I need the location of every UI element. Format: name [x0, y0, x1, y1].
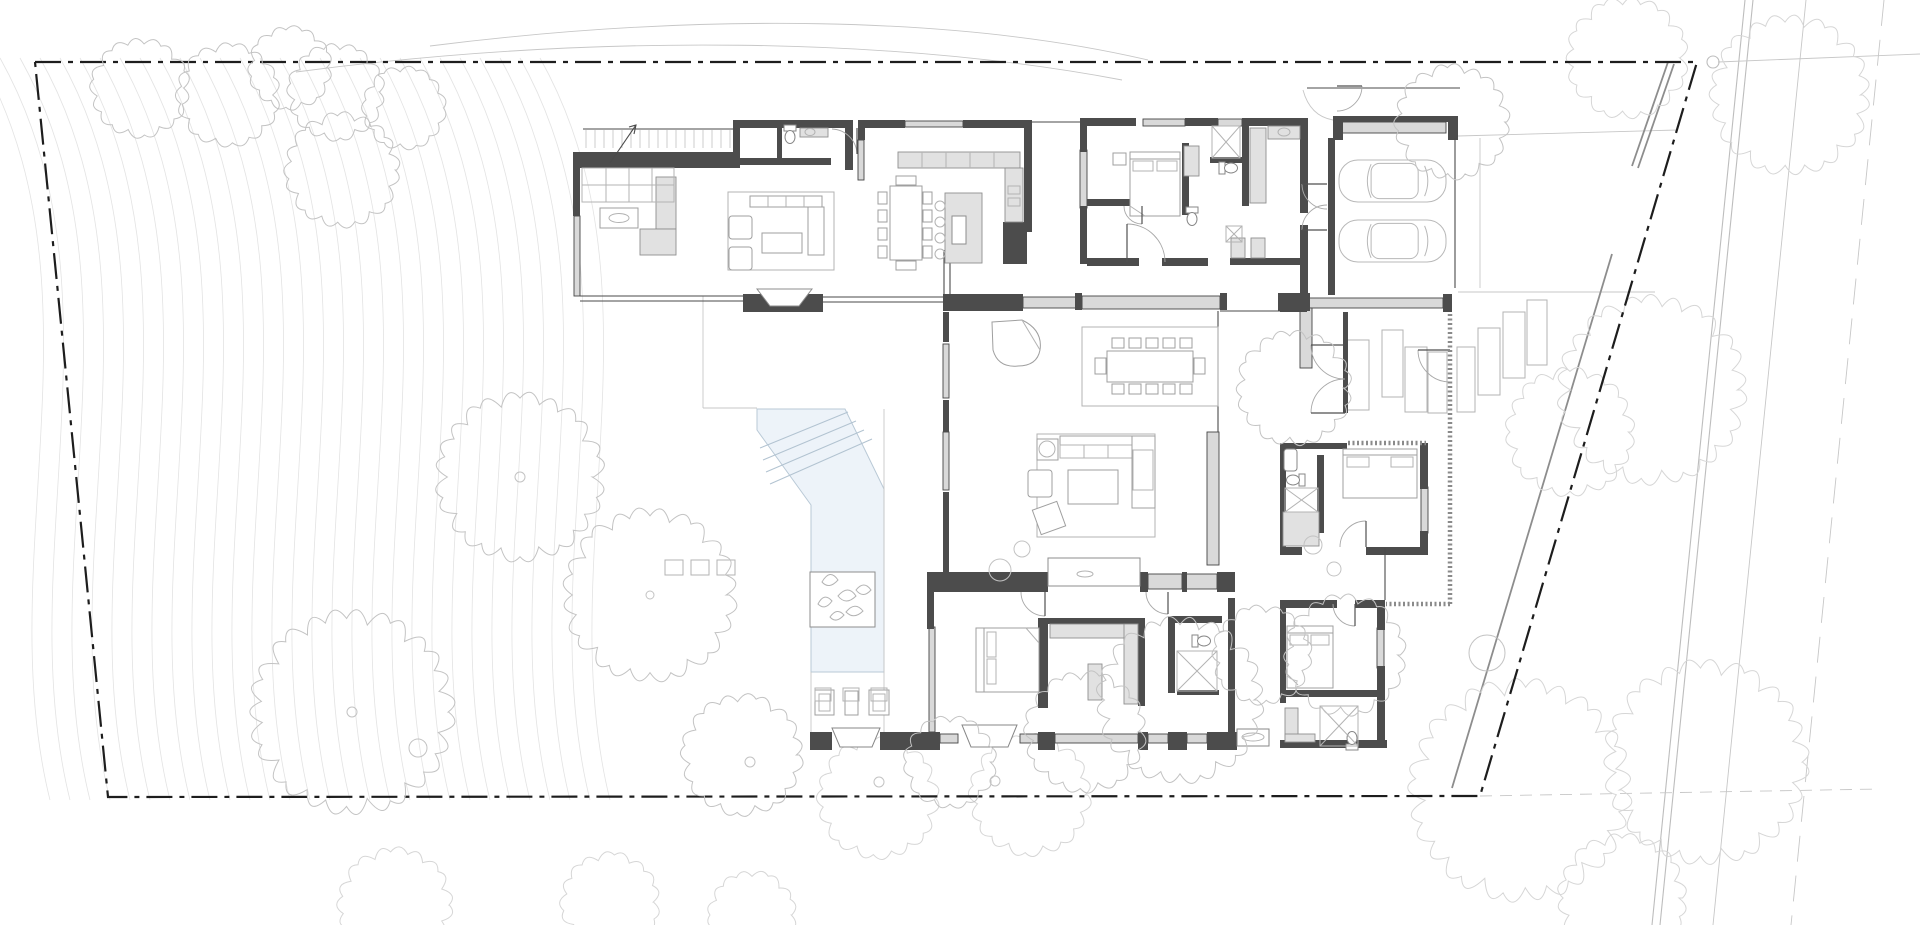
car-cabin [1371, 223, 1418, 258]
east-bed [1343, 455, 1417, 498]
tree-4 [284, 112, 400, 228]
contour-13 [240, 58, 310, 800]
contour-2 [20, 58, 90, 800]
contour-25 [480, 58, 550, 800]
wall-seg-31 [1228, 598, 1235, 732]
wall-seg-54 [1242, 118, 1308, 126]
master-door-2-swing [1146, 592, 1168, 614]
site-plan-page [0, 0, 1920, 925]
d8-chair-4 [878, 246, 887, 258]
contour-1 [0, 58, 70, 800]
formal-table [1107, 351, 1193, 382]
family-sofa-right [1132, 436, 1155, 508]
glazing-11 [940, 734, 958, 743]
contour-10 [180, 58, 250, 800]
tree-trunk-5 [874, 777, 884, 787]
glazing-4 [1082, 296, 1220, 309]
fire-table [600, 208, 638, 228]
wall-seg-43 [1280, 547, 1302, 555]
glazing-0 [858, 140, 864, 180]
contour-5 [80, 58, 150, 800]
powder-wc [784, 125, 796, 144]
contour-19 [360, 58, 430, 800]
family-sofa-seat [1060, 445, 1132, 458]
contour-16 [300, 58, 370, 800]
f-chair-s2 [1129, 384, 1141, 394]
pool-area [665, 296, 889, 748]
property-boundary [35, 56, 1719, 797]
road-edge-2 [1660, 0, 1753, 925]
car-1 [1339, 160, 1446, 202]
glazing-8 [1148, 574, 1182, 589]
wall-seg-55 [1080, 126, 1087, 152]
contour-4 [60, 58, 130, 800]
wall-seg-29 [1168, 732, 1187, 750]
wall-seg-27 [1038, 732, 1055, 750]
stepping-pad-4 [1457, 347, 1475, 412]
wall-seg-56 [1080, 206, 1087, 264]
retaining-wall-1a [1638, 64, 1674, 168]
d8-chair-3 [878, 228, 887, 240]
island-sink [952, 216, 966, 244]
boundary-extension [1480, 789, 1880, 796]
glazing-20 [929, 627, 935, 732]
bed3-wc-bowl [1347, 732, 1357, 745]
master-wc [1192, 635, 1211, 647]
master-door-1-swing [1021, 592, 1045, 616]
offsite-tree-3 [1506, 368, 1635, 497]
contour-20 [380, 58, 450, 800]
tree-8 [563, 508, 737, 682]
glazing-19 [1421, 487, 1428, 533]
suite-closet [1184, 146, 1199, 176]
wall-seg-22 [1182, 572, 1187, 592]
stepping-pads [1347, 300, 1547, 413]
living-armchair-2 [729, 247, 752, 270]
glazing-3 [1307, 298, 1443, 308]
glazing-23 [574, 216, 580, 296]
yard-gate-b-swing [1311, 379, 1345, 413]
yard-gate-a-swing [1311, 345, 1345, 379]
car-body [1339, 220, 1446, 262]
mudroom-cabinets [1250, 128, 1266, 203]
offsite-tree-2 [1558, 294, 1747, 485]
road-shoulder [1713, 0, 1806, 925]
f-chair-n3 [1146, 338, 1158, 348]
master-wc-bowl [1198, 636, 1211, 646]
f-chair-s4 [1163, 384, 1175, 394]
contour-26 [500, 58, 570, 800]
wall-seg-59 [1087, 258, 1139, 266]
tree-trunk-11 [1469, 635, 1505, 671]
kitchen-counter-east [1005, 168, 1023, 222]
d8-chair-1 [878, 192, 887, 204]
tree-9 [680, 694, 803, 817]
wall-seg-3 [777, 128, 782, 158]
wall-seg-14 [1075, 293, 1082, 310]
wall-seg-20 [927, 572, 1048, 592]
outdoor-kitchen-b [640, 229, 676, 255]
f-chair-s3 [1146, 384, 1158, 394]
tree-3 [287, 44, 384, 142]
wall-seg-0 [573, 152, 733, 168]
contour-3 [40, 58, 110, 800]
paver-3 [665, 560, 683, 575]
wall-seg-18 [943, 400, 949, 432]
glazing-18 [1377, 628, 1384, 668]
f-chair-n4 [1163, 338, 1175, 348]
living-sofa-chaise [808, 207, 824, 255]
glazing-1 [905, 121, 963, 127]
contour-8 [140, 58, 210, 800]
wall-seg-36 [1168, 623, 1175, 693]
washer [1231, 238, 1245, 258]
tree-trunk-3 [409, 739, 427, 757]
wall-seg-45 [1280, 600, 1337, 608]
powder-wc-bowl [785, 131, 795, 144]
east-bed-tub [1284, 449, 1297, 471]
site-wall-curve-0 [1303, 90, 1333, 120]
wall-seg-47 [1377, 608, 1385, 630]
stepping-pad-3 [1428, 352, 1447, 413]
pool-lounger-1 [845, 691, 858, 715]
wall-seg-7 [865, 120, 905, 128]
contour-6 [100, 58, 170, 800]
tree-7 [250, 610, 455, 815]
contour-0 [0, 58, 50, 800]
offsite-tree-8 [560, 852, 660, 925]
wall-seg-4 [735, 158, 831, 165]
suite-shower-wc-bowl [1225, 163, 1238, 173]
cars [1339, 160, 1446, 262]
glazing-22 [943, 432, 949, 490]
wall-seg-21 [1140, 572, 1148, 592]
stool-2 [935, 233, 945, 243]
east-bed-wc-bowl [1287, 475, 1300, 485]
family-fireplace [1048, 558, 1140, 586]
wall-seg-53 [1185, 118, 1218, 126]
retaining-wall-1b [1632, 62, 1668, 166]
stool-1 [935, 217, 945, 227]
stool-0 [935, 201, 945, 211]
car-2 [1339, 220, 1446, 262]
offsite-tree-0 [1566, 0, 1687, 119]
f-chair-head-e [1194, 358, 1205, 374]
tree-trunk-4 [745, 757, 755, 767]
wall-seg-67 [1333, 116, 1343, 140]
f-chair-head-w [1095, 358, 1106, 374]
contour-12 [220, 58, 290, 800]
offsite-tree-1 [1709, 15, 1869, 175]
contour-7 [120, 58, 190, 800]
suite-nightstand [1113, 153, 1126, 165]
tree-trunk-2 [646, 591, 654, 599]
wall-seg-10 [1003, 222, 1027, 264]
glazing-16 [1218, 119, 1242, 126]
wall-seg-6 [858, 120, 865, 140]
stepping-pad-2 [1405, 347, 1427, 412]
offsite-tree-5 [1604, 660, 1809, 865]
suite-shower-wc [1219, 162, 1238, 174]
glazing-21 [943, 344, 949, 398]
wall-seg-40 [1420, 443, 1428, 489]
d8-chair-10 [896, 261, 916, 270]
f-chair-s1 [1112, 384, 1124, 394]
contour-11 [200, 58, 270, 800]
contour-14 [260, 58, 330, 800]
survey-marker [1707, 56, 1719, 68]
car-rear-window [1425, 226, 1428, 256]
d8-chair-9 [896, 176, 916, 185]
wall-seg-25 [810, 732, 832, 750]
family-coffee-table [1068, 470, 1118, 504]
paver-4 [691, 560, 709, 575]
car-body [1339, 160, 1446, 202]
powder-door-swing [832, 129, 857, 154]
grade-line-0 [430, 23, 1148, 60]
kitchen-counter [898, 152, 1020, 168]
suite-low-wc-bowl [1187, 213, 1197, 226]
tub-bay-west [832, 728, 880, 747]
wall-seg-70 [1280, 294, 1307, 312]
master-bed [984, 628, 1039, 692]
wall-seg-11 [573, 168, 580, 216]
tree-1 [175, 43, 279, 147]
stepping-pad-7 [1527, 300, 1547, 365]
d8-chair-8 [923, 246, 932, 258]
suite-door-swing [1127, 224, 1165, 262]
wall-seg-68 [1448, 116, 1458, 140]
living-armchair-1 [729, 216, 752, 239]
tree-15 [1236, 331, 1351, 446]
glazing-14 [1187, 734, 1207, 743]
wall-seg-48 [1377, 666, 1385, 748]
contour-15 [280, 58, 350, 800]
car-cabin [1371, 163, 1418, 198]
bed3-wc [1346, 732, 1358, 751]
f-chair-n5 [1180, 338, 1192, 348]
suite-bed [1130, 159, 1180, 216]
closet-island [1088, 664, 1102, 700]
d8-chair-5 [923, 192, 932, 204]
curb-top [1718, 54, 1920, 62]
furniture [582, 128, 1417, 747]
car-windshield [1367, 164, 1371, 198]
d8-chair-7 [923, 228, 932, 240]
wall-seg-19 [943, 492, 949, 572]
wall-seg-15 [1220, 293, 1227, 310]
wall-seg-42 [1366, 547, 1422, 555]
glazing-15 [1143, 119, 1185, 126]
fence-gate-swing [1418, 350, 1450, 382]
east-bed-head [1343, 449, 1417, 455]
contour-17 [320, 58, 390, 800]
family-armchair [1028, 470, 1052, 497]
stepping-pad-6 [1503, 312, 1525, 378]
wall-seg-49 [1280, 608, 1286, 703]
bed3-cabinet-b [1285, 734, 1315, 742]
wall-seg-34 [1138, 618, 1145, 706]
dryer [1251, 238, 1265, 258]
tree-trunk-0 [515, 472, 525, 482]
contour-9 [160, 58, 230, 800]
wall-seg-71 [1443, 294, 1452, 312]
living-coffee-table [762, 233, 802, 253]
f-chair-n1 [1112, 338, 1124, 348]
master-bed-head [976, 628, 984, 692]
wall-seg-69 [1328, 138, 1335, 295]
wall-seg-23 [1217, 572, 1235, 592]
glazing-17 [1080, 150, 1087, 208]
offsite-tree-4 [1408, 679, 1632, 903]
side-gate-door-swing [1337, 86, 1362, 111]
dining8-table [890, 186, 922, 260]
contour-23 [440, 58, 510, 800]
glazing-2 [1340, 122, 1446, 133]
road-centerline [1791, 0, 1884, 925]
wall-seg-17 [943, 312, 949, 342]
suite-low-wc [1186, 207, 1198, 226]
wall-seg-5 [845, 120, 853, 170]
car-windshield [1367, 224, 1371, 258]
glazing-10 [1055, 734, 1138, 743]
contour-24 [460, 58, 530, 800]
glazing-9 [1186, 574, 1217, 589]
contour-18 [340, 58, 410, 800]
d8-chair-6 [923, 210, 932, 222]
contour-22 [420, 58, 490, 800]
wall-seg-33 [1048, 618, 1145, 624]
suite-bed-head [1130, 152, 1180, 159]
east-bed-wc [1287, 474, 1306, 486]
site-plan-drawing [0, 0, 1920, 925]
wall-seg-61 [1230, 258, 1307, 265]
stepping-pad-1 [1382, 330, 1403, 397]
family-sofa-back [1060, 436, 1132, 445]
tree-6 [436, 392, 605, 562]
offsite-tree-6 [1558, 834, 1687, 925]
wall-seg-60 [1162, 258, 1208, 266]
road-edge-1 [1652, 0, 1745, 925]
wall-seg-8 [963, 120, 1025, 128]
stepping-pad-5 [1478, 328, 1500, 395]
east-bed-closet [1283, 512, 1319, 546]
glazing-6 [1207, 432, 1219, 565]
paver-5 [717, 560, 735, 575]
offsite-tree-9 [708, 871, 796, 925]
tree-2 [248, 26, 331, 110]
tree-0 [90, 38, 190, 138]
f-chair-s5 [1180, 384, 1192, 394]
wall-seg-30 [1207, 732, 1237, 750]
d8-chair-2 [878, 210, 887, 222]
contour-21 [400, 58, 470, 800]
east-bed-door-swing [1340, 521, 1366, 547]
wall-seg-24 [927, 572, 934, 629]
wall-seg-63 [1242, 126, 1249, 206]
tree-12 [1097, 617, 1264, 784]
tree-trunk-8 [1014, 541, 1030, 557]
glazing-13 [1148, 734, 1168, 743]
glazing-5 [1023, 297, 1082, 308]
grand-piano [992, 320, 1040, 366]
offsite-tree-7 [337, 847, 453, 925]
wall-seg-9 [1024, 120, 1032, 232]
wall-seg-52 [1080, 118, 1136, 126]
wall-seg-13 [943, 294, 1023, 311]
tree-trunk-10 [1327, 562, 1341, 576]
offsite-tree-11 [968, 734, 1091, 857]
f-chair-n2 [1129, 338, 1141, 348]
